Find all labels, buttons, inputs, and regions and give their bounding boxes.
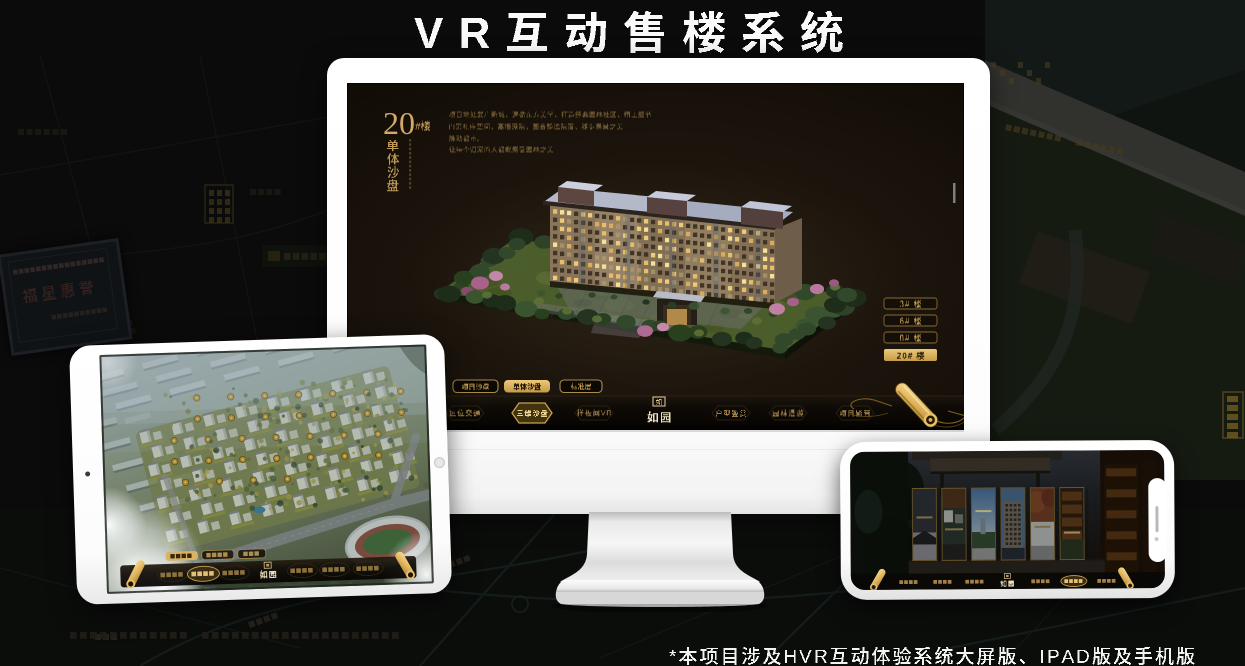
svg-text:20: 20 — [383, 105, 415, 141]
